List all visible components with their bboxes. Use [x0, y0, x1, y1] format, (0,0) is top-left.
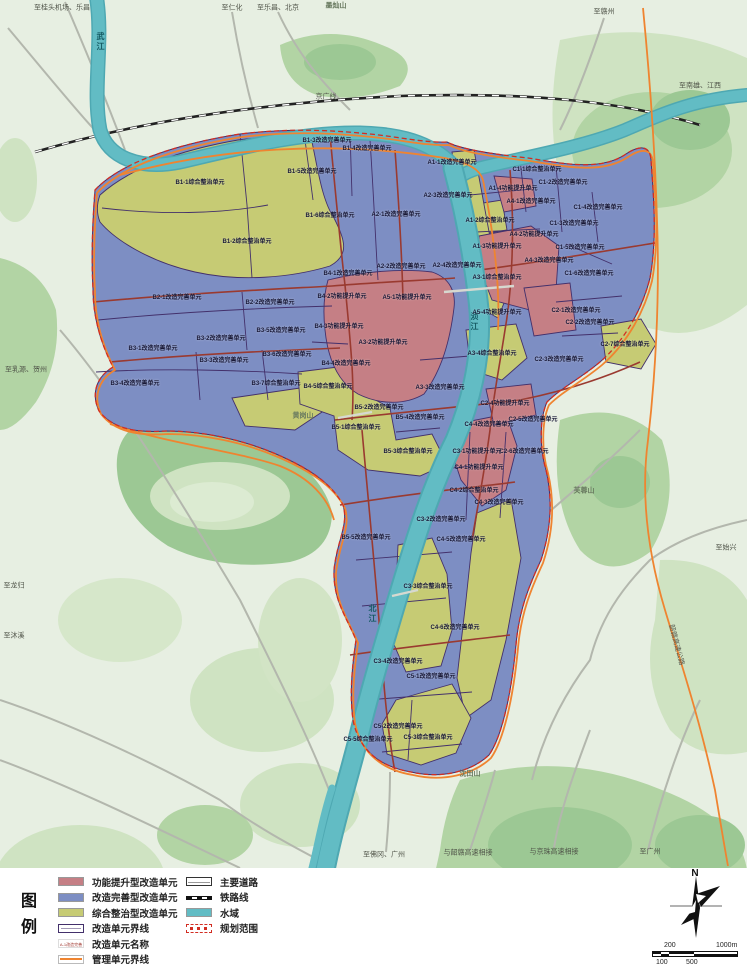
compass-icon	[660, 870, 730, 940]
legend-item-label: 改造单元名称	[92, 937, 149, 951]
legend-swatch-fill	[58, 908, 84, 917]
legend-column-units: 功能提升型改造单元改造完善型改造单元综合整治型改造单元改造单元界线A-1改造完善…	[58, 876, 178, 965]
legend-item-label: 规划范围	[220, 921, 258, 935]
legend-swatch-fill	[58, 893, 84, 902]
legend-item: A-1改造完善单元改造单元名称	[58, 938, 178, 949]
compass-north-label: N	[691, 868, 698, 879]
legend-item: 铁路线	[186, 892, 258, 903]
legend-column-lines: 主要道路铁路线水域规划范围	[186, 876, 258, 934]
legend-swatch-scope	[186, 924, 212, 933]
map-area: 至桂头机场、乐昌至仁化至乐昌、北京墨灿山至赣州至南雄、江西京广线武江浈江北江至乳…	[0, 0, 747, 868]
legend-item-label: 改造完善型改造单元	[92, 890, 178, 904]
legend-title: 图例	[20, 892, 40, 944]
legend-item-label: 综合整治型改造单元	[92, 906, 178, 920]
planning-map-page: 至桂头机场、乐昌至仁化至乐昌、北京墨灿山至赣州至南雄、江西京广线武江浈江北江至乳…	[0, 0, 747, 971]
scale-label-100: 100	[656, 959, 668, 966]
legend-item-label: 水域	[220, 906, 239, 920]
scale-bar: 200 1000m 100 500	[652, 942, 742, 968]
scale-label-1000m: 1000m	[716, 942, 737, 949]
legend-swatch-outline_orange	[58, 955, 84, 964]
scale-label-200: 200	[664, 942, 676, 949]
legend-swatch-outline_purple	[58, 924, 84, 933]
legend-swatch-fill	[58, 877, 84, 886]
legend-item: 改造完善型改造单元	[58, 892, 178, 903]
scale-label-500: 500	[686, 959, 698, 966]
legend-item: 改造单元界线	[58, 923, 178, 934]
legend-panel: 图例 功能提升型改造单元改造完善型改造单元综合整治型改造单元改造单元界线A-1改…	[0, 868, 747, 971]
legend-swatch-fill	[186, 908, 212, 917]
legend-item-label: 改造单元界线	[92, 921, 149, 935]
legend-item-label: 主要道路	[220, 875, 258, 889]
legend-item-label: 铁路线	[220, 890, 249, 904]
legend-item-label: 管理单元界线	[92, 952, 149, 966]
compass-rose: N	[660, 870, 730, 940]
scale-bar-graphic	[652, 951, 738, 957]
legend-item: 综合整治型改造单元	[58, 907, 178, 918]
legend-item: 规划范围	[186, 923, 258, 934]
legend-swatch-rail	[186, 896, 212, 900]
legend-item: 水域	[186, 907, 258, 918]
legend-swatch-road	[186, 877, 212, 886]
legend-item-label: 功能提升型改造单元	[92, 875, 178, 889]
legend-swatch-name_sample: A-1改造完善单元	[58, 939, 84, 948]
legend-item: 主要道路	[186, 876, 258, 887]
legend-item: 功能提升型改造单元	[58, 876, 178, 887]
legend-item: 管理单元界线	[58, 954, 178, 965]
map-artwork	[0, 0, 747, 868]
